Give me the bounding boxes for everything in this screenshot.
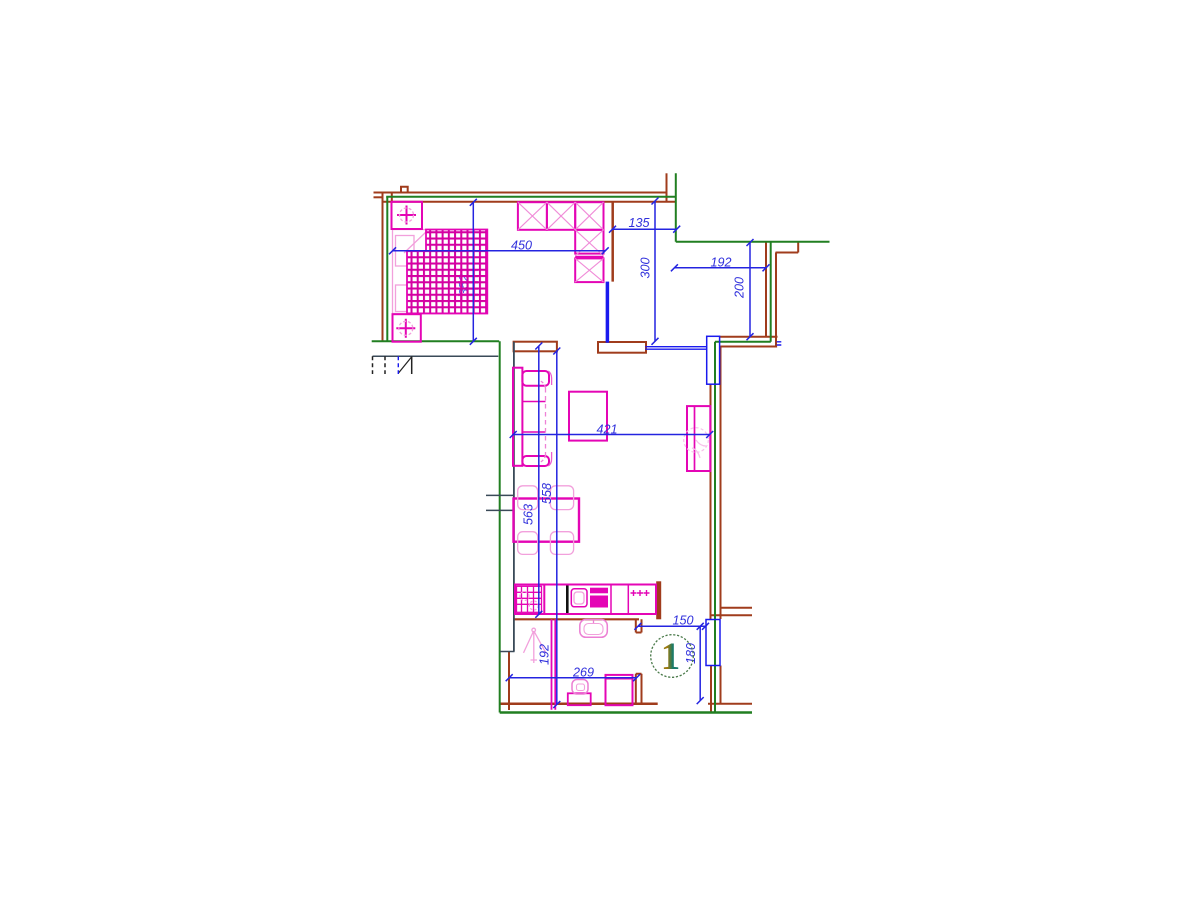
- svg-text:563: 563: [522, 504, 536, 525]
- svg-text:1: 1: [661, 635, 681, 678]
- svg-text:300: 300: [639, 257, 653, 278]
- svg-text:269: 269: [572, 666, 594, 680]
- svg-text:150: 150: [672, 614, 693, 628]
- svg-text:135: 135: [628, 216, 650, 230]
- svg-text:200: 200: [733, 277, 747, 299]
- svg-text:192: 192: [710, 256, 731, 270]
- svg-text:450: 450: [511, 239, 532, 253]
- svg-text:192: 192: [538, 644, 552, 665]
- svg-text:421: 421: [596, 423, 617, 437]
- svg-text:558: 558: [540, 483, 554, 504]
